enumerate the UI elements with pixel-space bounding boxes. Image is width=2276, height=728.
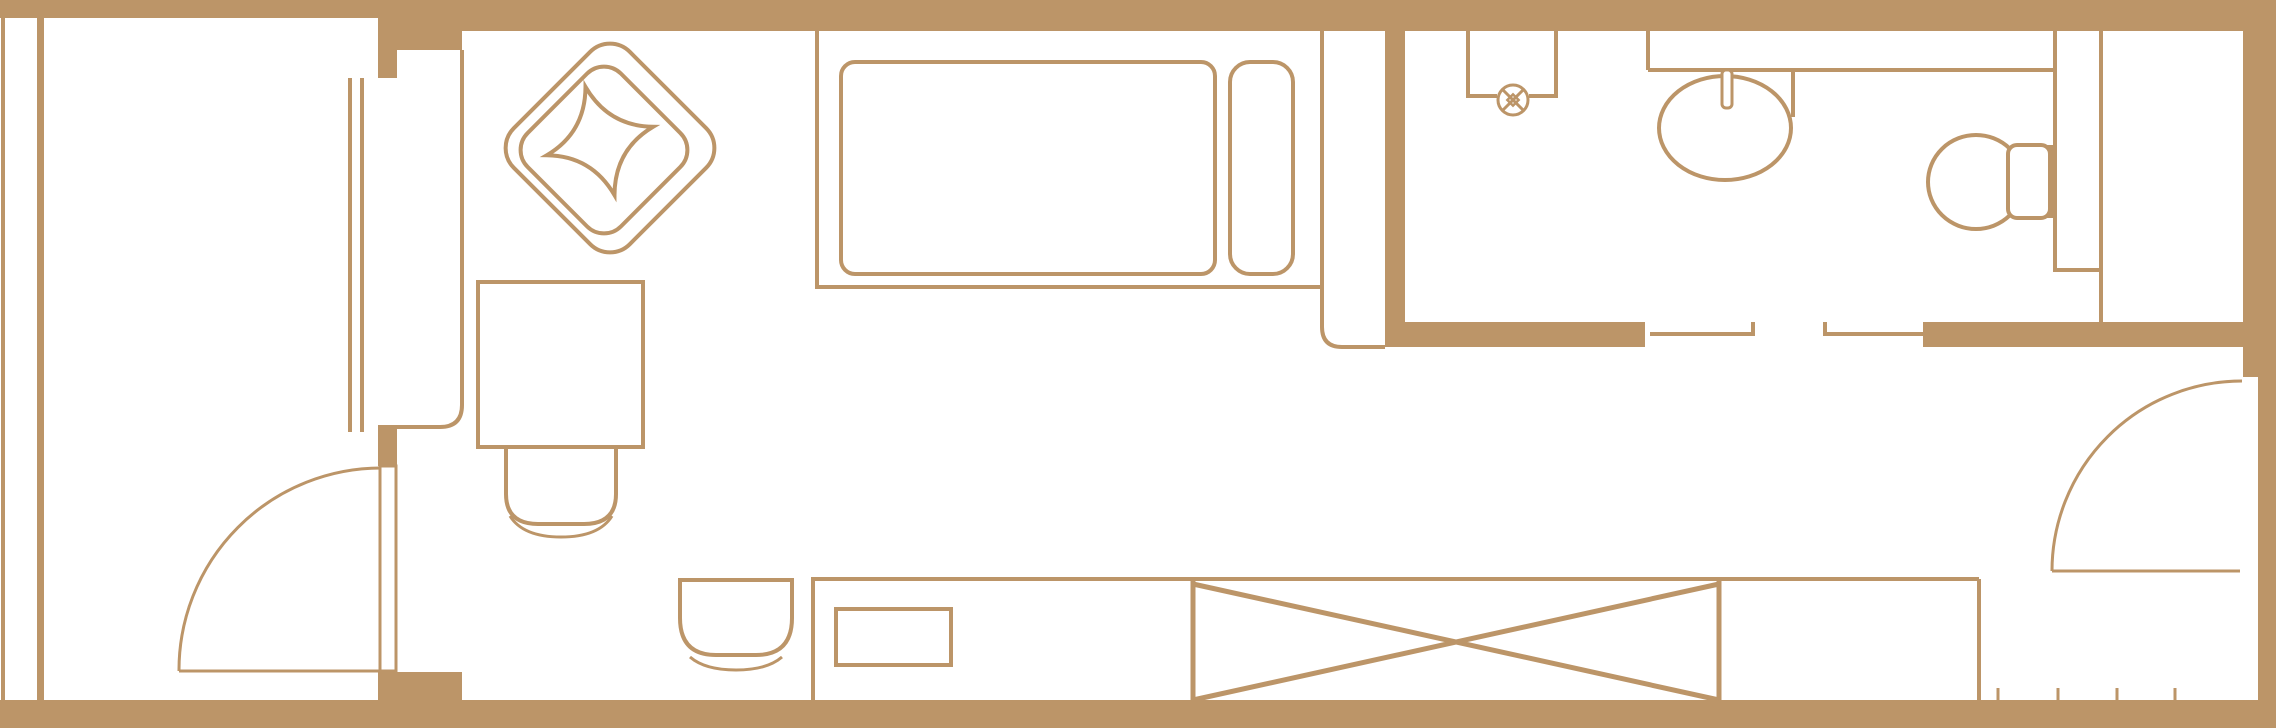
- armchair-seat-line: [511, 57, 698, 244]
- sink-faucet: [1722, 70, 1732, 108]
- balcony-door-swing-arc: [179, 468, 381, 671]
- bath-divider-wall: [1385, 31, 1405, 347]
- top-wall-balcony: [0, 0, 382, 18]
- bed-pillow: [1230, 62, 1293, 274]
- balcony-parapet-line: [37, 18, 44, 705]
- entry-door-swing-arc: [2052, 381, 2242, 571]
- desk-chair: [680, 580, 792, 655]
- balcony-door-sill-chunk: [378, 672, 462, 702]
- bed-mattress: [841, 62, 1215, 274]
- armchair-cushion: [532, 73, 667, 210]
- toilet-tank: [2008, 145, 2050, 218]
- desk-drawer: [836, 609, 951, 665]
- top-wall-main: [378, 0, 2276, 31]
- side-table: [478, 282, 643, 447]
- table-chair-base-line: [510, 516, 612, 537]
- table-chair: [506, 447, 616, 524]
- bath-south-wall-right: [1923, 322, 2276, 347]
- window-sill-block: [378, 425, 397, 466]
- floor-plan-svg: [0, 0, 2276, 728]
- bath-south-wall-left: [1400, 322, 1645, 347]
- left-facade-line: [1, 18, 5, 705]
- window-mullion-solid: [378, 50, 397, 78]
- floor-plan: [0, 0, 2276, 728]
- tall-cabinet-outline: [397, 50, 462, 427]
- desk-chair-base-line: [690, 657, 782, 670]
- right-wall-lower: [2258, 377, 2276, 728]
- wardrobe-crossed-box: [1193, 581, 1719, 700]
- bottom-wall: [0, 700, 2276, 728]
- service-shaft: [2055, 31, 2101, 322]
- bed-frame: [817, 31, 1385, 347]
- balcony-door-leaf: [380, 466, 396, 671]
- window-pillar-block: [378, 0, 462, 50]
